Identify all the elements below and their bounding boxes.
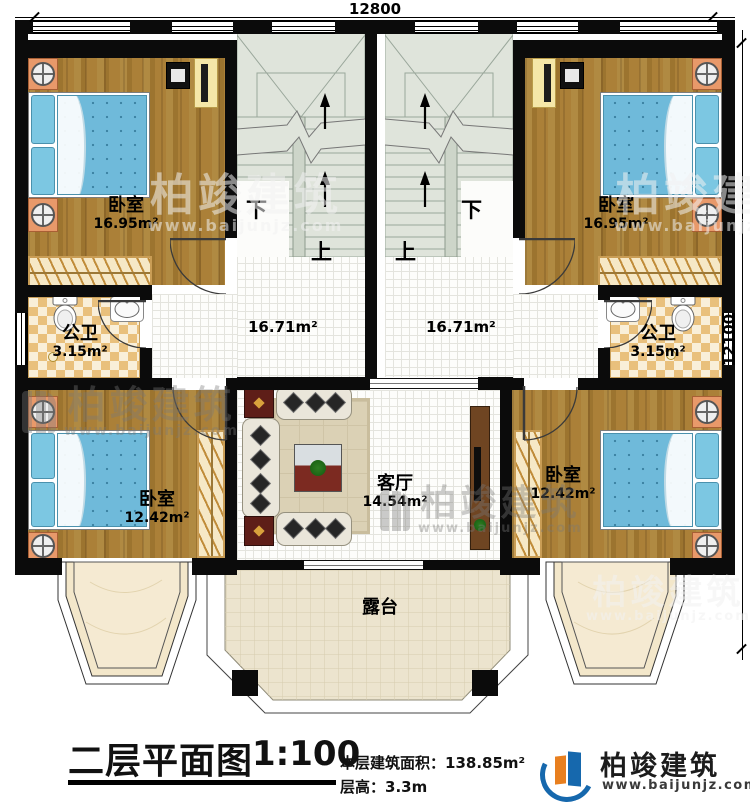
wardrobe <box>28 256 152 288</box>
window <box>33 20 130 34</box>
plant-icon <box>310 460 326 476</box>
nightstand <box>28 198 58 232</box>
floor-hall-right <box>385 255 513 377</box>
room-name: 卧室 <box>66 196 186 216</box>
bed-mattress <box>603 95 693 195</box>
terrace-sliding-door <box>304 560 423 570</box>
bed-pillows <box>31 433 55 527</box>
room-label-bath-right: 公卫 3.15m² <box>618 324 698 361</box>
doorway-opening <box>370 378 478 389</box>
tv-console <box>532 58 556 108</box>
staircase-left <box>237 33 365 257</box>
window <box>620 20 717 34</box>
room-area: 3.15m² <box>618 344 698 361</box>
bed-mattress <box>57 95 147 195</box>
floor-height-line: 层高：3.3m <box>340 776 427 797</box>
tv-icon <box>166 62 190 89</box>
room-label-terrace: 露台 <box>350 598 410 618</box>
room-area: 12.42m² <box>102 510 212 527</box>
wardrobe <box>598 256 722 288</box>
sofa <box>242 418 280 518</box>
title-block: 二层平面图 1:100 本层建筑面积：138.85m² 层高：3.3m 柏竣建筑… <box>0 726 750 806</box>
room-area: 16.95m² <box>66 216 186 233</box>
lamp-icon <box>31 203 55 227</box>
window <box>272 20 335 34</box>
title-underline <box>68 780 336 785</box>
lamp-icon <box>31 400 55 424</box>
end-table <box>244 388 274 418</box>
room-area: 3.15m² <box>40 344 120 361</box>
nightstand <box>692 396 722 428</box>
room-name: 卧室 <box>556 196 676 216</box>
floor-height-value: 3.3m <box>385 778 427 796</box>
lamp-icon <box>695 534 719 558</box>
room-name: 卧室 <box>102 490 212 510</box>
bed <box>28 92 150 198</box>
floor-height-label: 层高： <box>340 778 385 796</box>
lamp-icon <box>695 400 719 424</box>
room-label-hall-right: 16.71m² <box>426 318 496 336</box>
floor-corridor-left <box>152 294 237 378</box>
floor-area-line: 本层建筑面积：138.85m² <box>340 752 525 773</box>
room-label-bath-left: 公卫 3.15m² <box>40 324 120 361</box>
stair-up-label-right: 上 <box>395 242 416 263</box>
bay-window-left <box>50 552 202 692</box>
room-name: 客厅 <box>350 474 440 494</box>
window <box>415 20 478 34</box>
lamp-icon <box>695 203 719 227</box>
nightstand <box>692 532 722 560</box>
room-label-bedroom-br: 卧室 12.42m² <box>508 466 618 503</box>
sofa <box>276 386 352 420</box>
nightstand <box>28 532 58 560</box>
floor-area-label: 本层建筑面积： <box>340 754 445 772</box>
coffee-table <box>294 444 342 492</box>
room-name: 卧室 <box>508 466 618 486</box>
terrace <box>198 556 538 718</box>
bed-pillows <box>695 95 719 195</box>
bay-window-right <box>538 552 690 692</box>
floor-hall-left <box>237 255 365 377</box>
floor-plan: 下 上 下 上 <box>0 0 750 806</box>
bed-pillows <box>31 95 55 195</box>
room-label-bedroom-bl: 卧室 12.42m² <box>102 490 212 527</box>
room-area: 16.95m² <box>556 216 676 233</box>
room-label-hall-left: 16.71m² <box>248 318 318 336</box>
room-label-bedroom-tl: 卧室 16.95m² <box>66 196 186 233</box>
terrace-pillar-left <box>232 670 258 696</box>
door-bedroom-bl <box>172 386 228 442</box>
end-table <box>244 516 274 546</box>
window <box>517 20 578 34</box>
window <box>15 313 28 365</box>
bed <box>600 430 722 530</box>
lamp-icon <box>31 62 55 86</box>
door-bedroom-tr <box>519 238 575 294</box>
stair-down-label-left: 下 <box>246 200 267 221</box>
nightstand <box>28 396 58 428</box>
tv-icon <box>474 447 481 501</box>
bed <box>600 92 722 198</box>
room-name: 露台 <box>350 598 410 618</box>
lamp-icon <box>695 62 719 86</box>
tv-icon <box>560 62 584 89</box>
bed-pillows <box>695 433 719 527</box>
nightstand <box>28 58 58 90</box>
stair-down-label-right: 下 <box>461 200 482 221</box>
plan-title: 二层平面图 <box>68 732 253 784</box>
tv-cabinet <box>470 406 490 550</box>
room-name: 公卫 <box>40 324 120 344</box>
window <box>172 20 233 34</box>
floor-corridor-right <box>513 294 598 378</box>
room-label-bedroom-tr: 卧室 16.95m² <box>556 196 676 233</box>
sofa <box>276 512 352 546</box>
staircase-right <box>385 33 513 257</box>
terrace-pillar-right <box>472 670 498 696</box>
nightstand <box>692 58 722 90</box>
room-area: 14.54m² <box>350 494 440 511</box>
room-area: 12.42m² <box>508 486 618 503</box>
brand-website: www.baijunjz.com <box>602 778 750 793</box>
room-label-living: 客厅 14.54m² <box>350 474 440 511</box>
nightstand <box>692 198 722 232</box>
brand-logo-icon <box>540 746 592 798</box>
dimension-width: 12800 <box>340 0 410 18</box>
room-name: 公卫 <box>618 324 698 344</box>
tv-console <box>194 58 218 108</box>
dimension-line-right <box>742 30 743 660</box>
stair-up-label-left: 上 <box>311 242 332 263</box>
lamp-icon <box>31 534 55 558</box>
floor-area-value: 138.85m² <box>445 754 525 772</box>
door-bedroom-tl <box>170 238 226 294</box>
door-bedroom-br <box>522 386 578 442</box>
dimension-height: 12100 <box>720 300 736 380</box>
plant-icon <box>474 519 486 531</box>
